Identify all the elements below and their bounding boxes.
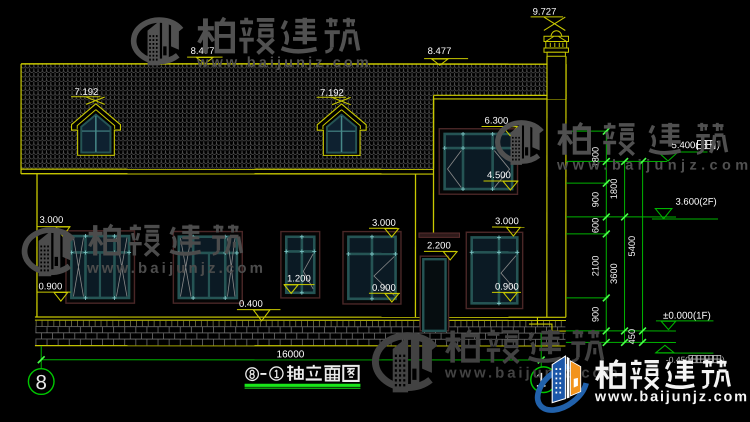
svg-text:2100: 2100 xyxy=(590,256,600,277)
svg-text:6.300: 6.300 xyxy=(485,116,509,127)
svg-text:www.baijunjz.com: www.baijunjz.com xyxy=(86,260,266,277)
svg-text:3.600(2F): 3.600(2F) xyxy=(676,197,717,208)
svg-text:5400: 5400 xyxy=(627,236,637,257)
svg-text:1800: 1800 xyxy=(609,179,619,200)
svg-text:3600: 3600 xyxy=(609,263,619,284)
svg-text:0.900: 0.900 xyxy=(38,281,62,292)
svg-text:450: 450 xyxy=(627,329,637,345)
svg-text:8: 8 xyxy=(36,371,47,394)
svg-text:www.baijunjz.com: www.baijunjz.com xyxy=(556,158,750,174)
svg-text:www.baijunjz.com: www.baijunjz.com xyxy=(444,365,621,382)
svg-text:3.000: 3.000 xyxy=(39,215,63,226)
svg-text:2.200: 2.200 xyxy=(427,241,451,252)
svg-text:600: 600 xyxy=(590,218,600,234)
svg-text:8.477: 8.477 xyxy=(428,46,452,57)
svg-text:9.727: 9.727 xyxy=(533,7,557,18)
svg-text:0.900: 0.900 xyxy=(495,282,519,293)
svg-text:www.baijunjz.com: www.baijunjz.com xyxy=(594,389,749,405)
svg-text:0.900: 0.900 xyxy=(372,283,396,294)
svg-text:1.200: 1.200 xyxy=(287,273,311,284)
svg-text:3.000: 3.000 xyxy=(495,216,519,227)
svg-text:±0.000(1F): ±0.000(1F) xyxy=(663,311,711,322)
svg-text:3.000: 3.000 xyxy=(372,218,396,229)
svg-text:7.192: 7.192 xyxy=(75,87,99,98)
svg-text:16000: 16000 xyxy=(277,349,305,360)
svg-text:900: 900 xyxy=(591,192,601,208)
svg-text:www.baijunjz.com: www.baijunjz.com xyxy=(196,55,372,71)
svg-text:0.400: 0.400 xyxy=(239,299,263,310)
svg-text:900: 900 xyxy=(590,307,600,323)
svg-text:4.500: 4.500 xyxy=(487,170,511,181)
